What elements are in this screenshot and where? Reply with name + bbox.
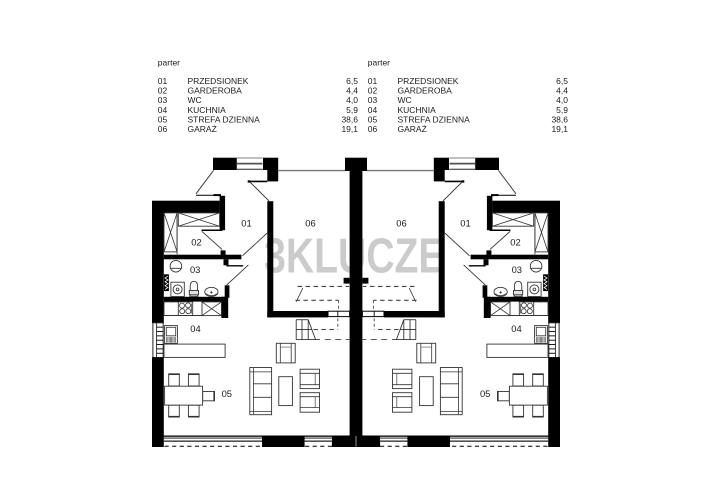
svg-text:38,6: 38,6 bbox=[341, 114, 358, 124]
svg-text:02: 02 bbox=[191, 236, 201, 247]
svg-text:5,9: 5,9 bbox=[556, 105, 568, 115]
svg-text:4,0: 4,0 bbox=[346, 95, 358, 105]
svg-text:04: 04 bbox=[368, 105, 378, 115]
svg-text:19,1: 19,1 bbox=[341, 124, 358, 134]
svg-text:6,5: 6,5 bbox=[346, 76, 358, 86]
svg-text:01: 01 bbox=[158, 76, 168, 86]
svg-text:38,6: 38,6 bbox=[551, 114, 568, 124]
svg-text:PRZEDSIONEK: PRZEDSIONEK bbox=[188, 76, 249, 86]
svg-text:GARDEROBA: GARDEROBA bbox=[188, 86, 243, 96]
svg-text:04: 04 bbox=[158, 105, 168, 115]
svg-text:GARAŻ: GARAŻ bbox=[188, 124, 217, 134]
svg-text:01: 01 bbox=[368, 76, 378, 86]
svg-text:01: 01 bbox=[460, 217, 470, 228]
svg-text:KUCHNIA: KUCHNIA bbox=[398, 105, 437, 115]
svg-text:4,4: 4,4 bbox=[346, 86, 358, 96]
svg-text:06: 06 bbox=[396, 217, 406, 228]
svg-text:01: 01 bbox=[241, 217, 251, 228]
svg-text:06: 06 bbox=[368, 124, 378, 134]
svg-text:KUCHNIA: KUCHNIA bbox=[188, 105, 227, 115]
svg-text:parter: parter bbox=[368, 58, 390, 68]
svg-text:19,1: 19,1 bbox=[551, 124, 568, 134]
svg-text:GARDEROBA: GARDEROBA bbox=[398, 86, 453, 96]
svg-text:05: 05 bbox=[368, 114, 378, 124]
svg-text:03: 03 bbox=[190, 264, 200, 275]
svg-text:05: 05 bbox=[158, 114, 168, 124]
svg-text:5,9: 5,9 bbox=[346, 105, 358, 115]
svg-text:6,5: 6,5 bbox=[556, 76, 568, 86]
svg-text:04: 04 bbox=[190, 323, 200, 334]
svg-text:05: 05 bbox=[480, 388, 490, 399]
svg-text:05: 05 bbox=[222, 388, 232, 399]
svg-text:STREFA DZIENNA: STREFA DZIENNA bbox=[188, 114, 261, 124]
svg-text:4,4: 4,4 bbox=[556, 86, 568, 96]
svg-text:GARAŻ: GARAŻ bbox=[398, 124, 427, 134]
svg-text:parter: parter bbox=[158, 58, 180, 68]
svg-text:06: 06 bbox=[305, 217, 315, 228]
svg-text:STREFA DZIENNA: STREFA DZIENNA bbox=[398, 114, 471, 124]
svg-text:WC: WC bbox=[188, 95, 202, 105]
svg-text:03: 03 bbox=[158, 95, 168, 105]
svg-text:4,0: 4,0 bbox=[556, 95, 568, 105]
svg-text:03: 03 bbox=[512, 264, 522, 275]
svg-text:PRZEDSIONEK: PRZEDSIONEK bbox=[398, 76, 459, 86]
svg-text:WC: WC bbox=[398, 95, 412, 105]
svg-text:02: 02 bbox=[158, 86, 168, 96]
svg-text:04: 04 bbox=[511, 323, 521, 334]
svg-text:03: 03 bbox=[368, 95, 378, 105]
svg-text:02: 02 bbox=[368, 86, 378, 96]
svg-text:06: 06 bbox=[158, 124, 168, 134]
svg-text:02: 02 bbox=[510, 236, 520, 247]
